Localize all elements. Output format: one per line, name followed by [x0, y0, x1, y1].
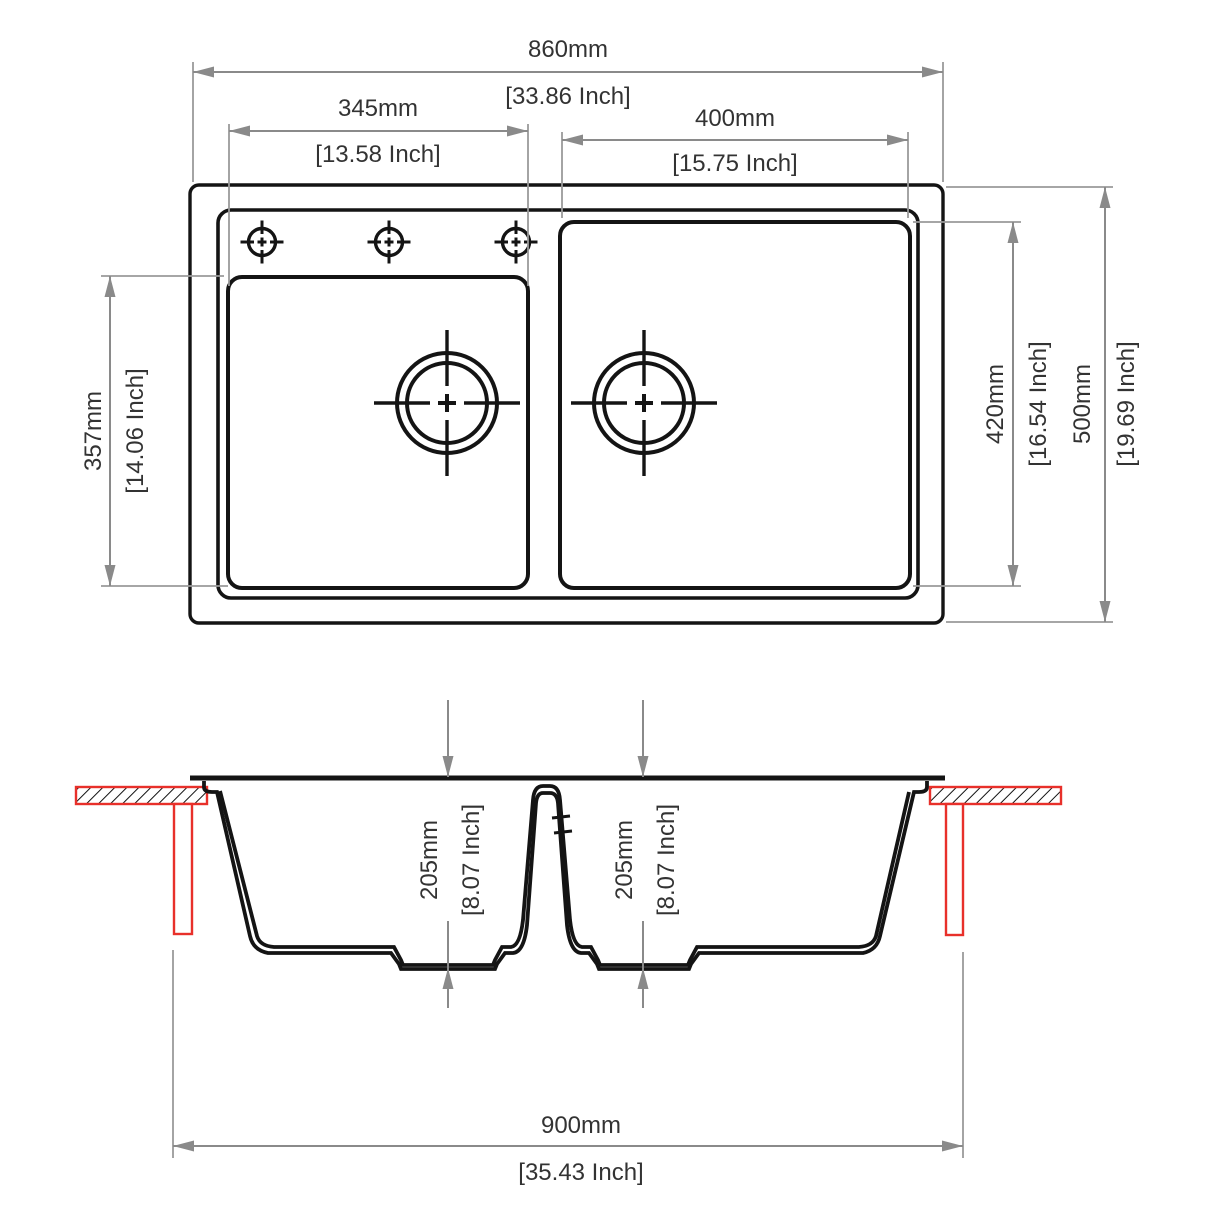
arrow-left-icon	[562, 135, 583, 146]
arrow-left-icon	[173, 1141, 194, 1152]
arrow-left-icon	[229, 126, 250, 137]
dim-right-bowl-depth-mm: 420mm	[982, 364, 1009, 444]
arrow-up-icon	[443, 968, 454, 989]
sink-outer-edge	[190, 185, 943, 623]
arrow-down-icon	[1008, 565, 1019, 586]
dim-cabinet-width-inch: [35.43 Inch]	[518, 1159, 643, 1186]
dim-left-bowl-width-mm: 345mm	[338, 95, 418, 122]
sink-dimension-drawing: 860mm [33.86 Inch] 345mm [13.58 Inch] 40…	[0, 0, 1214, 1214]
right-drain-icon	[571, 330, 717, 476]
dim-right-bowl-depth: 420mm [16.54 Inch]	[913, 222, 1052, 586]
dim-right-bowl-section-depth-mm: 205mm	[611, 820, 638, 900]
arrow-down-icon	[638, 756, 649, 777]
arrow-down-icon	[443, 756, 454, 777]
dim-overall-depth-mm: 500mm	[1069, 364, 1096, 444]
arrow-up-icon	[1100, 187, 1111, 208]
arrow-up-icon	[638, 968, 649, 989]
dim-overall-width-inch: [33.86 Inch]	[505, 83, 630, 110]
top-view: 860mm [33.86 Inch] 345mm [13.58 Inch] 40…	[80, 36, 1140, 623]
arrow-up-icon	[1008, 222, 1019, 243]
dim-right-bowl-section-depth: 205mm [8.07 Inch]	[611, 700, 680, 1008]
arrow-right-icon	[922, 67, 943, 78]
sink-rim	[218, 210, 918, 598]
section-view: 205mm [8.07 Inch] 205mm [8.07 Inch] 900m…	[76, 700, 1061, 1186]
dim-right-bowl-depth-inch: [16.54 Inch]	[1025, 341, 1052, 466]
dim-right-bowl-width-mm: 400mm	[695, 105, 775, 132]
dim-overall-depth-inch: [19.69 Inch]	[1113, 341, 1140, 466]
dim-left-bowl-depth: 357mm [14.06 Inch]	[80, 276, 228, 586]
left-bowl	[228, 277, 528, 588]
dim-left-bowl-depth-mm: 357mm	[80, 391, 107, 471]
dim-left-bowl-width-inch: [13.58 Inch]	[315, 141, 440, 168]
right-bowl	[560, 222, 910, 588]
arrow-down-icon	[1100, 601, 1111, 622]
dim-cabinet-width-mm: 900mm	[541, 1112, 621, 1139]
arrow-right-icon	[887, 135, 908, 146]
faucet-hole-icon-3	[495, 221, 538, 264]
arrow-left-icon	[193, 67, 214, 78]
dim-overall-width: 860mm [33.86 Inch]	[193, 36, 943, 182]
dim-right-bowl-width: 400mm [15.75 Inch]	[562, 105, 908, 218]
faucet-hole-icon-1	[241, 221, 284, 264]
dim-overall-width-mm: 860mm	[528, 36, 608, 63]
dim-right-bowl-section-depth-inch: [8.07 Inch]	[653, 804, 680, 916]
left-cabinet-wall	[174, 804, 192, 934]
right-countertop-section	[930, 787, 1061, 804]
arrow-up-icon	[105, 276, 116, 297]
arrow-right-icon	[507, 126, 528, 137]
left-drain-icon	[374, 330, 520, 476]
dim-left-bowl-section-depth-inch: [8.07 Inch]	[458, 804, 485, 916]
sink-bowl-surface-profile	[220, 786, 909, 965]
dim-cabinet-width: 900mm [35.43 Inch]	[173, 950, 963, 1186]
dim-right-bowl-width-inch: [15.75 Inch]	[672, 150, 797, 177]
dim-left-bowl-section-depth: 205mm [8.07 Inch]	[416, 700, 485, 1008]
dim-left-bowl-section-depth-mm: 205mm	[416, 820, 443, 900]
arrow-right-icon	[942, 1141, 963, 1152]
technical-drawing-sheet: 860mm [33.86 Inch] 345mm [13.58 Inch] 40…	[0, 0, 1214, 1214]
faucet-hole-icon-2	[368, 221, 411, 264]
arrow-down-icon	[105, 565, 116, 586]
dim-left-bowl-depth-inch: [14.06 Inch]	[122, 368, 149, 493]
right-cabinet-wall	[946, 804, 963, 935]
left-countertop-section	[76, 787, 207, 804]
dim-left-bowl-width: 345mm [13.58 Inch]	[229, 95, 528, 286]
